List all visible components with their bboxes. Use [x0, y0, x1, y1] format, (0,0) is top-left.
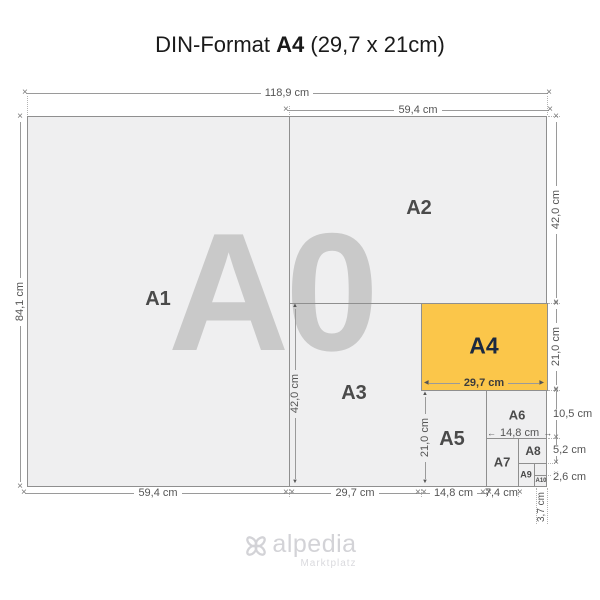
dim-label: 59,4 cm [134, 488, 181, 499]
arrow-right-icon: → [543, 429, 552, 438]
dim-label: 21,0 cm [420, 414, 431, 461]
dim-tick: × [546, 88, 552, 98]
title-prefix: DIN-Format [155, 32, 270, 57]
dim-tick: × [517, 488, 523, 498]
title-format: A4 [276, 32, 304, 57]
label-a8: A8 [525, 445, 540, 457]
dim-a4-width: ◀ 29,7 cm ▶ [424, 377, 544, 389]
clover-logo-icon [243, 532, 269, 563]
page-title: DIN-Format A4 (29,7 x 21cm) [0, 32, 600, 58]
dim-a3-width: × 29,7 cm × [285, 487, 425, 499]
dim-tick: × [553, 112, 559, 122]
arrow-down-icon: ▼ [292, 479, 298, 485]
title-suffix: (29,7 x 21cm) [310, 32, 445, 57]
divider-a8-bottom [518, 463, 547, 464]
dim-a5-height: ▲ 21,0 cm ▼ [418, 391, 432, 485]
dim-label: 29,7 cm [331, 488, 378, 499]
dim-label: 3,7 cm [537, 492, 547, 522]
dim-tick: × [553, 458, 559, 468]
dim-tick: × [553, 433, 559, 443]
dim-a8-height-label: 5,2 cm [552, 445, 587, 456]
label-a1: A1 [145, 289, 171, 309]
label-a6: A6 [509, 409, 526, 422]
dim-label: 21,0 cm [551, 323, 562, 370]
dim-tick: × [553, 386, 559, 396]
label-a3: A3 [341, 383, 367, 403]
dim-label: 59,4 cm [394, 105, 441, 116]
logo-tagline: Marktplatz [272, 558, 356, 569]
dim-label: 42,0 cm [551, 186, 562, 233]
dim-label: 7,4 cm [484, 488, 519, 499]
dim-a1-width: × 59,4 cm × [23, 487, 293, 499]
dim-total-width: × 118,9 cm × [24, 87, 550, 99]
dim-tick: × [17, 112, 23, 122]
label-a5: A5 [439, 429, 465, 449]
dim-a6-height-label: 10,5 cm [552, 409, 593, 420]
dim-label: 14,8 cm [430, 488, 477, 499]
label-a7: A7 [494, 456, 511, 469]
dim-total-height: × 84,1 cm × [12, 112, 28, 492]
dim-label: 14,8 cm [496, 428, 543, 439]
dim-a10-height-label: 2,6 cm [552, 472, 587, 483]
label-a2: A2 [406, 198, 432, 218]
dim-a7-width: × 7,4 cm × [482, 487, 522, 499]
label-a9: A9 [520, 471, 532, 480]
din-format-diagram: DIN-Format A4 (29,7 x 21cm) A0 A1 A2 A3 … [0, 0, 600, 600]
dim-label: 29,7 cm [460, 378, 508, 389]
dim-a3-height: ▲ 42,0 cm ▼ [288, 303, 302, 485]
dim-label: 118,9 cm [261, 88, 313, 99]
dim-tick: × [553, 299, 559, 309]
dim-label: 42,0 cm [290, 370, 301, 417]
arrow-right-icon: ▶ [539, 380, 544, 386]
arrow-down-icon: ▼ [422, 479, 428, 485]
label-a10: A10 [535, 478, 546, 484]
dim-label: 84,1 cm [15, 278, 26, 325]
dim-a9-width: 3,7 cm [535, 489, 548, 525]
logo-name: alpedia [272, 532, 356, 557]
dim-a6-width: ← 14,8 cm → [487, 427, 546, 439]
divider-a10-top [534, 475, 547, 476]
brand-logo: alpedia Marktplatz [0, 532, 600, 569]
dim-a4-height: × 21,0 cm × [548, 299, 564, 395]
arrow-left-icon: ← [487, 429, 496, 438]
label-a4: A4 [469, 335, 498, 358]
dim-a2-height: × 42,0 cm × [548, 112, 564, 308]
dim-half-width-top: × 59,4 cm × [285, 104, 551, 116]
a0-watermark: A0 [168, 200, 375, 385]
